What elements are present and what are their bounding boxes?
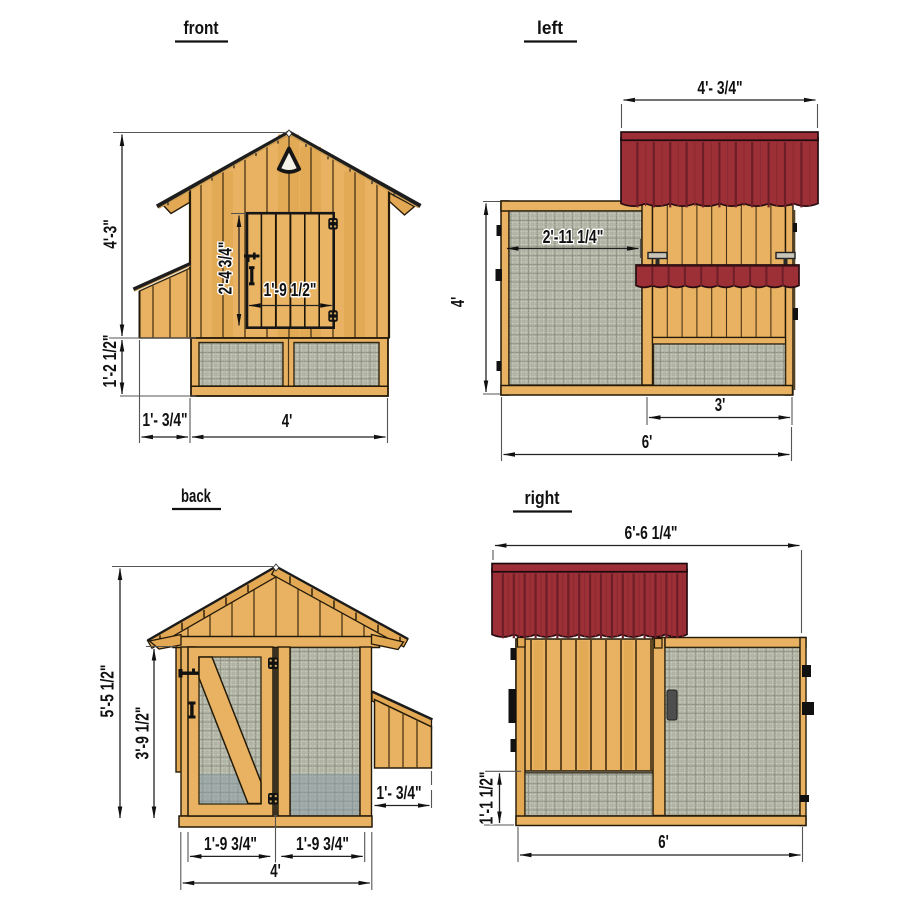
svg-text:2'-11 1/4": 2'-11 1/4" [543,227,604,247]
svg-text:right: right [525,488,560,508]
svg-text:6'-6 1/4": 6'-6 1/4" [625,523,678,543]
svg-text:4': 4' [448,297,468,308]
svg-text:1'-9 3/4": 1'-9 3/4" [296,834,349,854]
svg-text:1'-9 1/2": 1'-9 1/2" [264,280,317,300]
svg-text:4': 4' [282,411,293,431]
svg-text:1'-2 1/2": 1'-2 1/2" [100,335,120,388]
svg-text:4'-3": 4'-3" [101,219,121,249]
svg-text:3': 3' [715,395,726,415]
svg-text:1'- 3/4": 1'- 3/4" [376,783,421,803]
svg-text:5'-5 1/2": 5'-5 1/2" [98,665,118,718]
svg-text:2'-4 3/4": 2'-4 3/4" [216,242,236,295]
svg-text:4'- 3/4": 4'- 3/4" [697,78,742,98]
svg-text:6': 6' [658,832,669,852]
svg-text:front: front [184,18,219,38]
svg-text:1'-9 3/4": 1'-9 3/4" [204,834,257,854]
svg-text:4': 4' [270,861,281,881]
svg-text:3'-9 1/2": 3'-9 1/2" [133,707,153,760]
svg-text:6': 6' [642,432,653,452]
svg-text:1'- 3/4": 1'- 3/4" [142,410,187,430]
svg-text:left: left [537,18,563,38]
svg-text:back: back [181,486,212,506]
svg-text:1'-1 1/2": 1'-1 1/2" [477,772,497,825]
